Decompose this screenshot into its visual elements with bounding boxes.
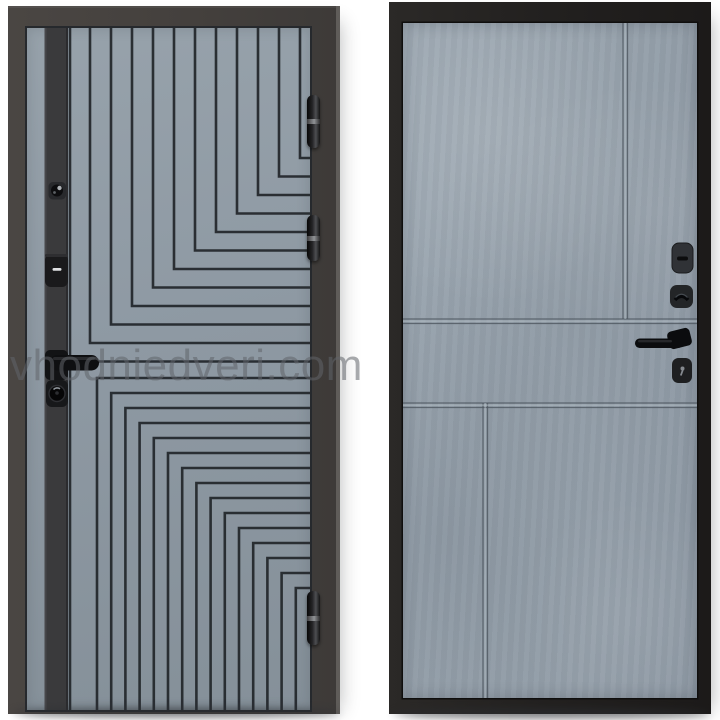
thumb-turn: [672, 243, 693, 273]
right-door-panel: [403, 23, 697, 698]
watermark: vhodniedveri.com: [10, 341, 363, 391]
right-door: [389, 2, 711, 714]
peephole: [49, 182, 67, 200]
hinge-knuckle: [307, 119, 320, 124]
hinge-middle: [307, 215, 320, 261]
left-door-shadow: [12, 708, 340, 717]
right-door-handle: [635, 327, 693, 350]
hinge-knuckle: [307, 236, 320, 241]
right-door-shadow: [392, 709, 710, 718]
keyhole-escutcheon: [672, 358, 692, 383]
keyhole-cover: [45, 254, 68, 287]
door-product-photo: vhodniedveri.com: [0, 0, 720, 720]
groove-highlights: [403, 23, 697, 698]
hinge-bottom: [307, 591, 320, 645]
hinge-top: [307, 95, 320, 148]
panel-grooves: [403, 23, 697, 698]
right-door-details: [403, 23, 697, 698]
night-latch: [670, 285, 693, 308]
hinge-knuckle: [307, 616, 320, 621]
